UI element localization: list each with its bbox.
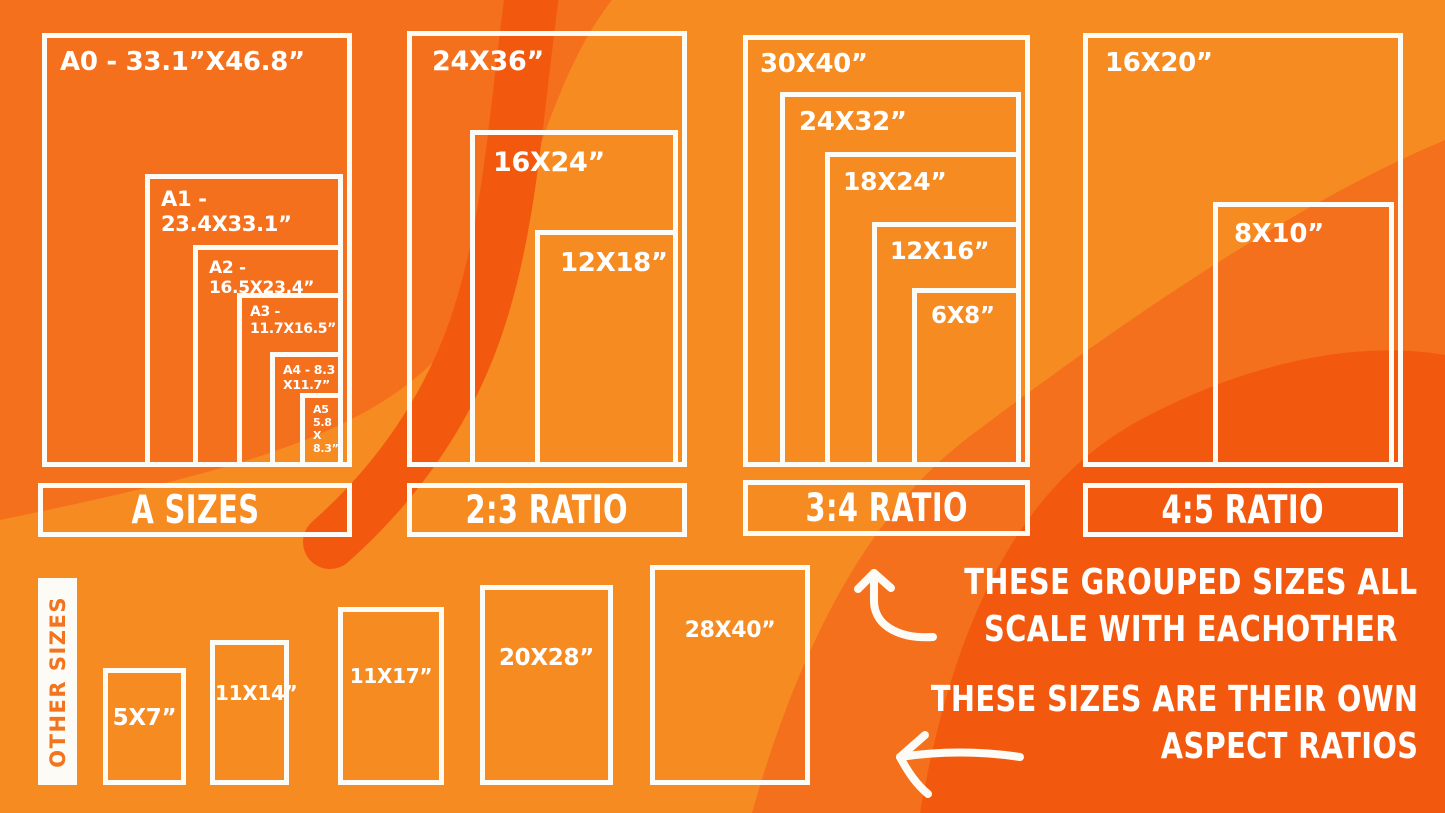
- group-4-5-ratio-title-bar: 4:5 RATIO: [1083, 483, 1403, 537]
- group-3-4-ratio-title-bar: 3:4 RATIO: [743, 480, 1030, 536]
- size-label-12x16: 12X16”: [890, 237, 1016, 265]
- group-4-5-ratio-title: 4:5 RATIO: [1162, 488, 1324, 533]
- size-label-24x32: 24X32”: [799, 107, 1016, 138]
- annotation-grouped-line1: THESE GROUPED SIZES ALL: [965, 562, 1418, 603]
- size-label-8x10: 8X10”: [1234, 219, 1389, 250]
- annotation-grouped-sizes: THESE GROUPED SIZES ALL SCALE WITH EACHO…: [851, 560, 1418, 654]
- group-a-sizes-title-bar: A SIZES: [38, 483, 352, 537]
- size-label-a4: A4 - 8.3 X11.7”: [283, 363, 338, 393]
- size-label-24x36: 24X36”: [432, 46, 682, 78]
- size-label-a3: A3 - 11.7X16.5”: [250, 304, 338, 337]
- size-label-5x7: 5X7”: [108, 705, 181, 731]
- group-3-4-ratio: 30X40” 24X32” 18X24” 12X16” 6X8”: [743, 35, 1030, 467]
- size-label-a5: A5 5.8 X 8.3”: [313, 404, 338, 456]
- size-rect-6x8: 6X8”: [912, 288, 1021, 467]
- size-label-a0: A0 - 33.1”X46.8”: [60, 47, 347, 78]
- annotation-own-ratios: THESE SIZES ARE THEIR OWN ASPECT RATIOS: [809, 677, 1418, 771]
- size-rect-11x17: 11X17”: [338, 607, 444, 785]
- group-2-3-ratio-title: 2:3 RATIO: [466, 488, 628, 533]
- size-rect-12x18: 12X18”: [535, 230, 678, 467]
- size-label-18x24: 18X24”: [843, 167, 1016, 197]
- size-label-20x28: 20X28”: [485, 645, 608, 671]
- size-label-16x24: 16X24”: [493, 147, 673, 179]
- size-rect-a5: A5 5.8 X 8.3”: [300, 393, 343, 467]
- size-label-6x8: 6X8”: [931, 303, 1016, 330]
- other-sizes-banner-label: OTHER SIZES: [46, 596, 70, 768]
- group-2-3-ratio: 24X36” 16X24” 12X18”: [407, 31, 687, 467]
- size-rect-20x28: 20X28”: [480, 585, 613, 785]
- group-2-3-ratio-title-bar: 2:3 RATIO: [407, 483, 687, 537]
- size-rect-11x14: 11X14”: [210, 640, 289, 785]
- size-label-a1: A1 - 23.4X33.1”: [161, 187, 338, 237]
- other-sizes-banner: OTHER SIZES: [38, 578, 77, 785]
- group-a-sizes: A0 - 33.1”X46.8” A1 - 23.4X33.1” A2 - 16…: [42, 33, 352, 467]
- poster-size-infographic: A0 - 33.1”X46.8” A1 - 23.4X33.1” A2 - 16…: [0, 0, 1445, 813]
- size-label-11x17: 11X17”: [343, 664, 439, 688]
- size-label-16x20: 16X20”: [1105, 48, 1398, 79]
- size-label-11x14: 11X14”: [215, 681, 284, 705]
- group-4-5-ratio: 16X20” 8X10”: [1083, 33, 1403, 467]
- annotation-own-line1: THESE SIZES ARE THEIR OWN: [930, 679, 1418, 720]
- group-3-4-ratio-title: 3:4 RATIO: [805, 486, 967, 531]
- size-rect-28x40: 28X40”: [650, 565, 810, 785]
- annotation-own-line2: ASPECT RATIOS: [1160, 726, 1418, 767]
- size-rect-8x10: 8X10”: [1213, 202, 1394, 467]
- size-label-12x18: 12X18”: [560, 248, 673, 279]
- annotation-grouped-line2: SCALE WITH EACHOTHER: [984, 609, 1398, 650]
- size-rect-5x7: 5X7”: [103, 668, 186, 785]
- size-label-28x40: 28X40”: [655, 618, 805, 643]
- size-label-30x40: 30X40”: [760, 49, 1025, 80]
- group-a-sizes-title: A SIZES: [131, 488, 259, 533]
